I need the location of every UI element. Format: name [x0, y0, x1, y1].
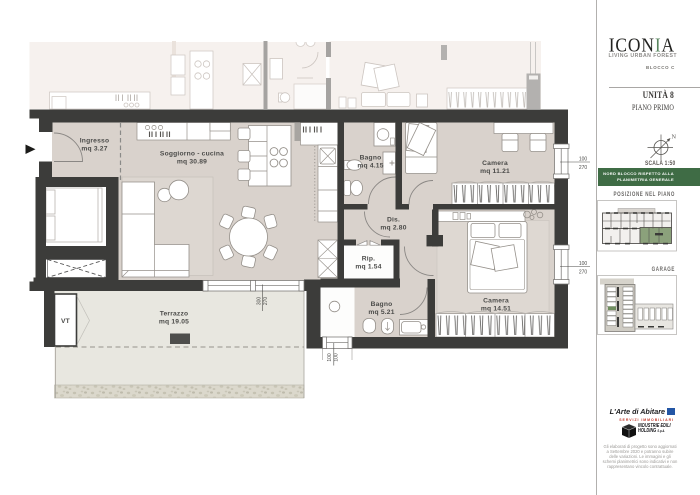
svg-text:Camera: Camera [482, 160, 508, 167]
svg-text:Bagno: Bagno [360, 155, 382, 162]
svg-text:mq 19.05: mq 19.05 [159, 319, 189, 326]
svg-text:mq 2.80: mq 2.80 [380, 225, 406, 232]
svg-text:Dis.: Dis. [387, 217, 400, 224]
svg-text:N: N [672, 134, 677, 141]
svg-text:Terrazzo: Terrazzo [160, 311, 189, 318]
svg-text:mq 11.21: mq 11.21 [480, 168, 510, 175]
svg-text:mq 3.27: mq 3.27 [81, 146, 107, 153]
svg-text:mq 4.15: mq 4.15 [357, 163, 383, 170]
svg-text:mq 5.21: mq 5.21 [368, 309, 394, 316]
svg-text:100: 100 [334, 353, 340, 362]
svg-text:mq 30.89: mq 30.89 [177, 159, 207, 166]
svg-text:Rip.: Rip. [362, 256, 375, 263]
svg-text:Camera: Camera [483, 298, 509, 305]
svg-text:300: 300 [257, 297, 263, 306]
svg-text:Ingresso: Ingresso [80, 138, 109, 145]
svg-text:Soggiorno - cucina: Soggiorno - cucina [160, 151, 224, 158]
svg-text:mq 14.51: mq 14.51 [481, 306, 511, 313]
svg-text:Bagno: Bagno [371, 301, 393, 308]
svg-text:VT: VT [61, 318, 71, 325]
svg-text:mq 1.54: mq 1.54 [355, 264, 381, 271]
svg-text:270: 270 [263, 297, 269, 306]
svg-text:100: 100 [327, 353, 333, 362]
